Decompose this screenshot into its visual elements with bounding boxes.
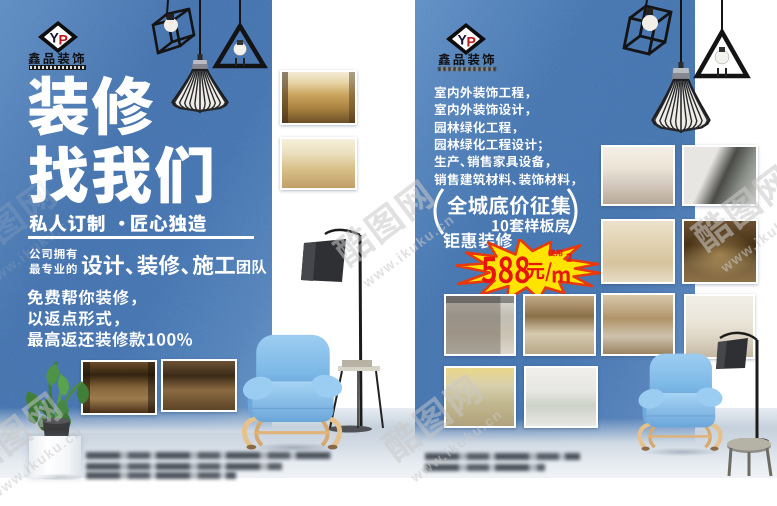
svg-text:P: P <box>467 34 476 50</box>
svg-text:P: P <box>59 32 68 48</box>
